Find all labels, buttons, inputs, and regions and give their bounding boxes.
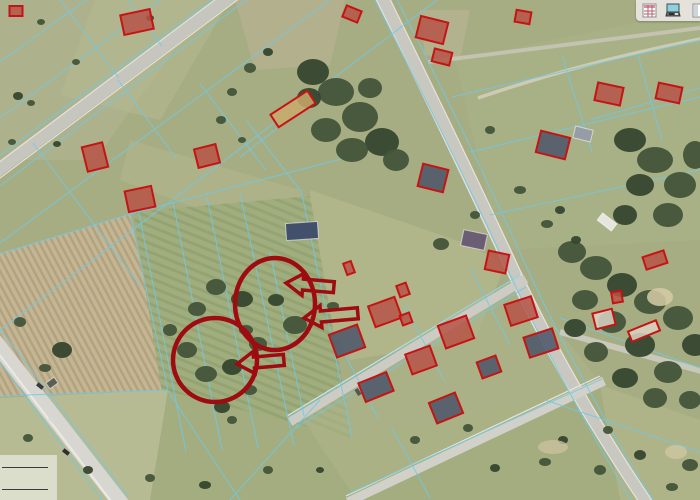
building-outline (592, 309, 615, 329)
building-outline (418, 164, 449, 193)
attribute-table-icon[interactable] (642, 3, 657, 18)
building-outline (82, 142, 108, 171)
scale-bar (0, 455, 57, 500)
map-toolbar (636, 0, 700, 21)
building (285, 221, 318, 240)
map-canvas (0, 0, 700, 500)
building-outline (10, 6, 23, 16)
side-panel-icon[interactable] (692, 3, 700, 18)
building-outline (400, 313, 413, 326)
scale-bar-line (2, 489, 48, 490)
building-outline (194, 144, 220, 168)
building-outline (125, 186, 156, 212)
map-viewport[interactable] (0, 0, 700, 500)
building-outline (611, 291, 623, 304)
print-preview-icon[interactable] (665, 3, 680, 18)
building-outline (485, 251, 509, 274)
building-outline (515, 10, 532, 24)
scale-bar-line (2, 467, 48, 468)
